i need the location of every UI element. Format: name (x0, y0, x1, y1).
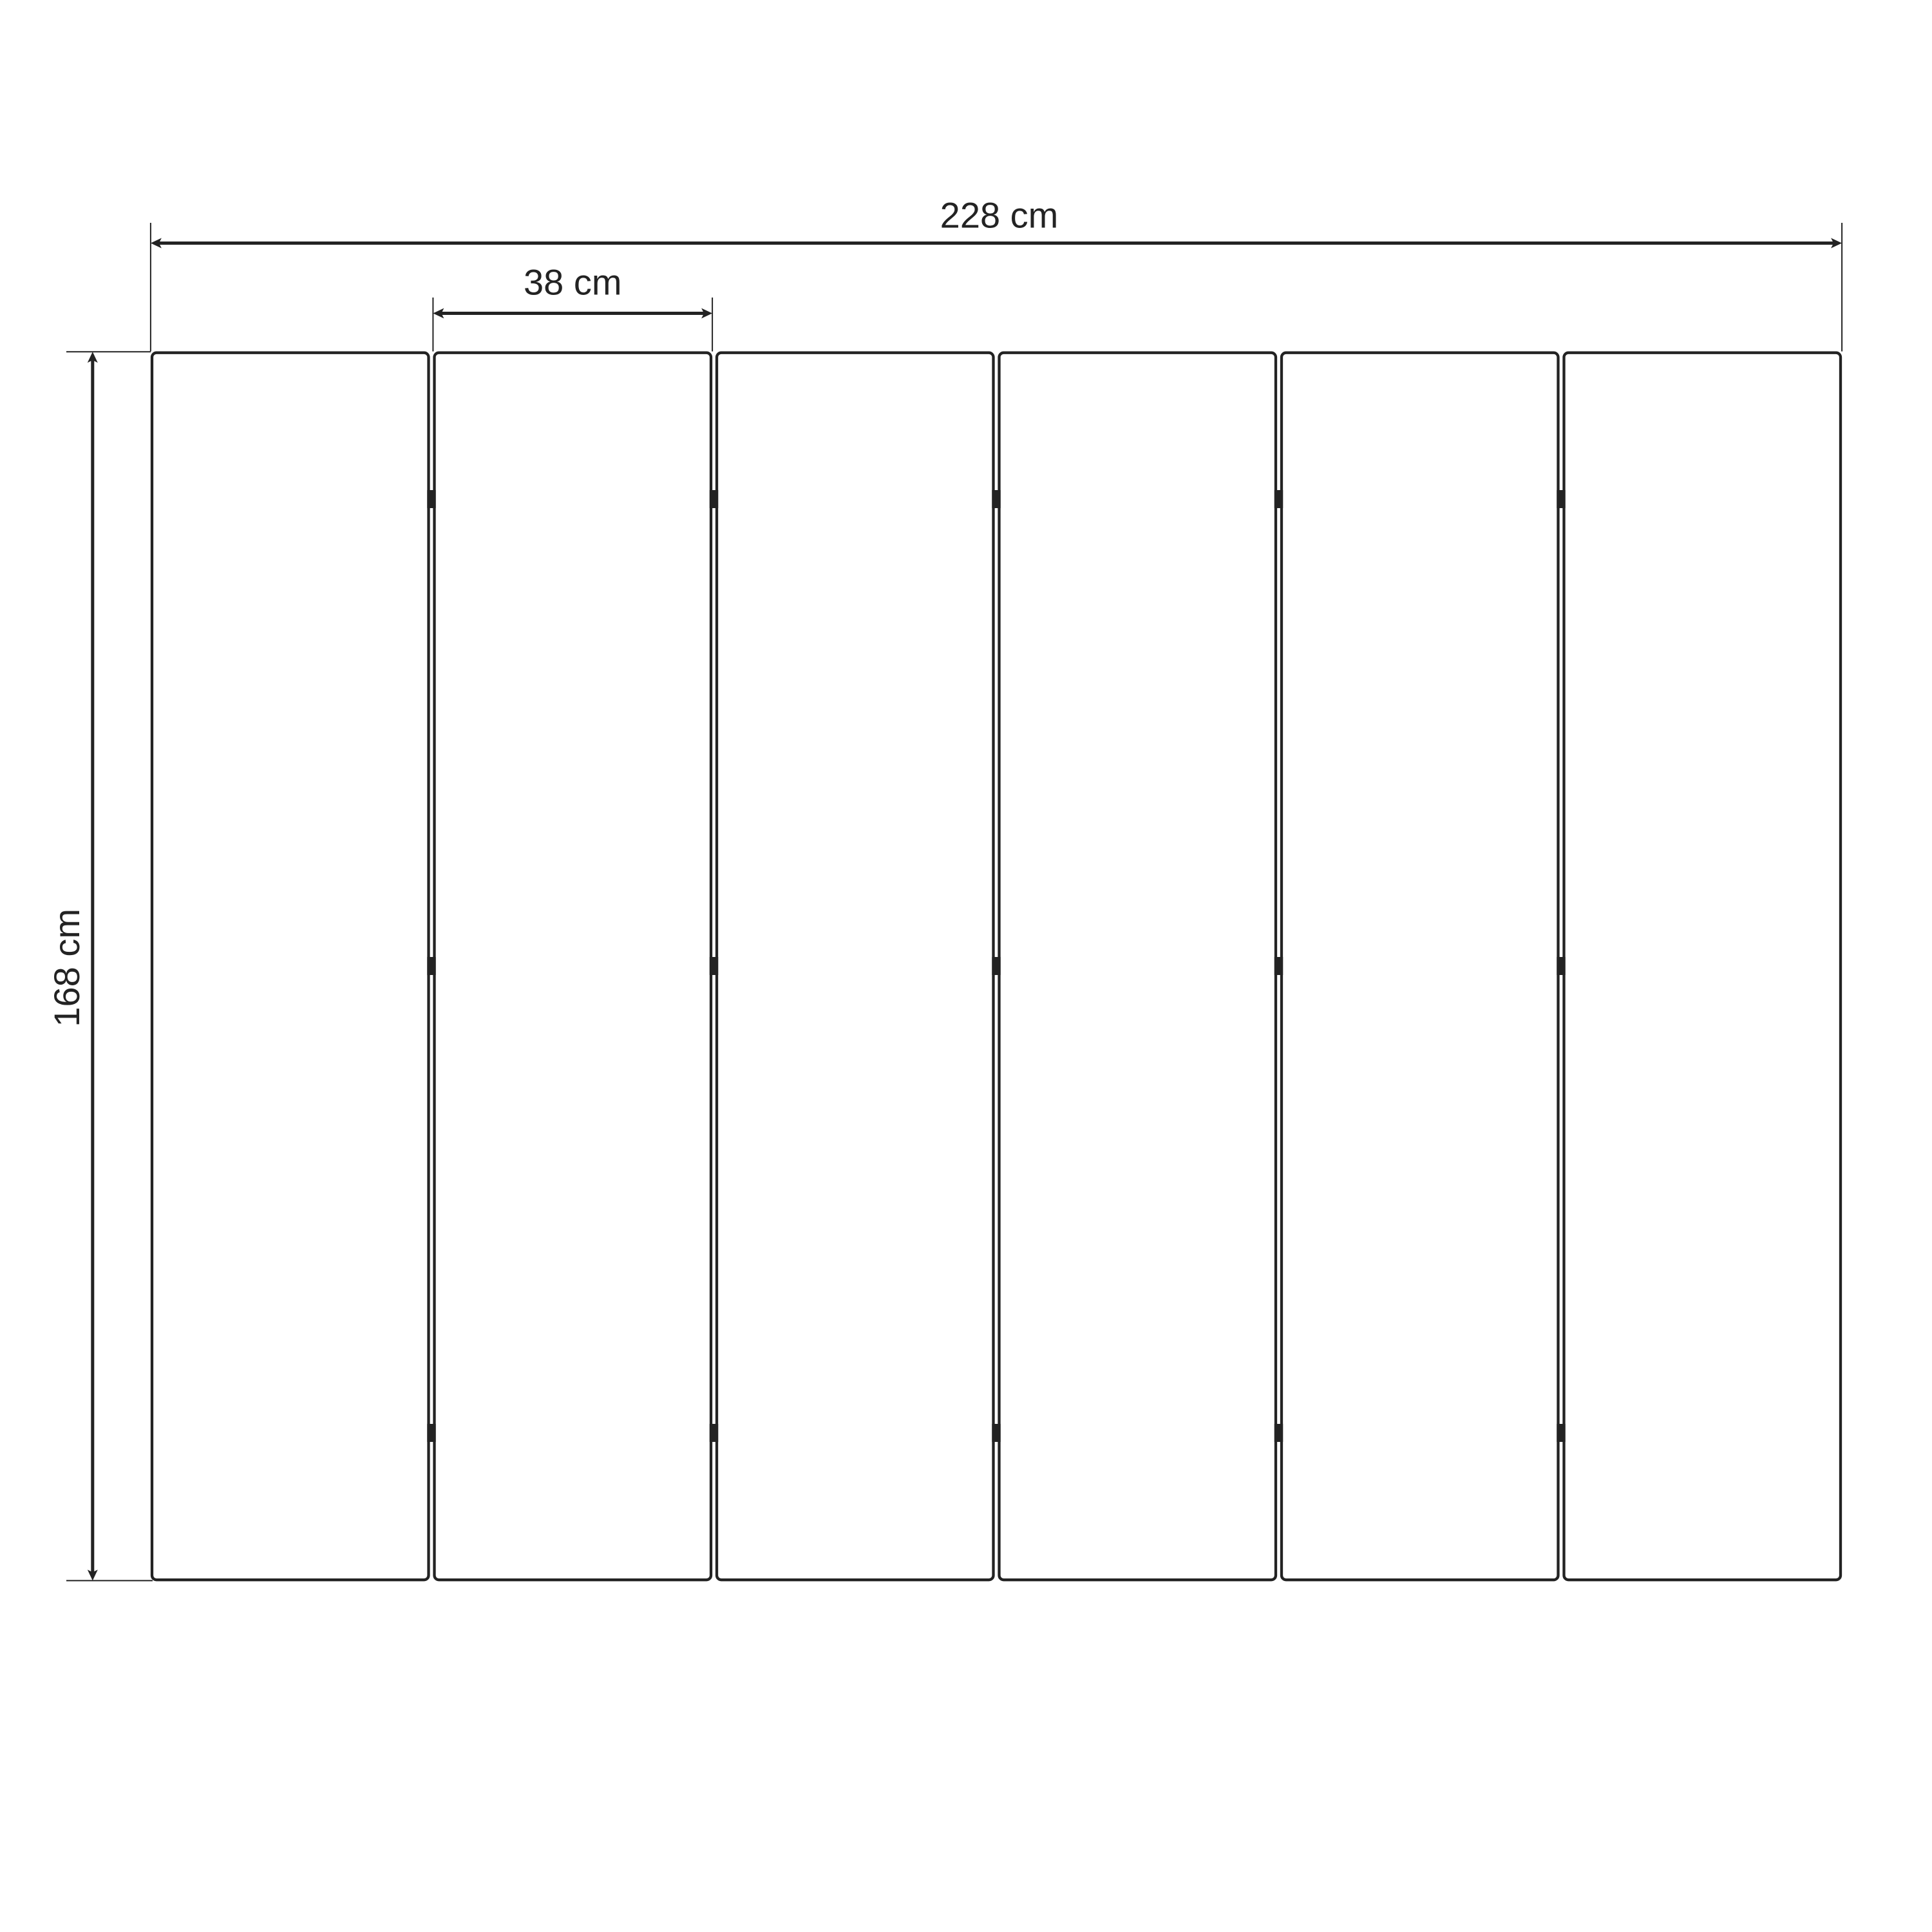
svg-text:38 cm: 38 cm (524, 262, 622, 303)
svg-text:228 cm: 228 cm (940, 195, 1059, 236)
svg-text:168 cm: 168 cm (46, 909, 87, 1027)
